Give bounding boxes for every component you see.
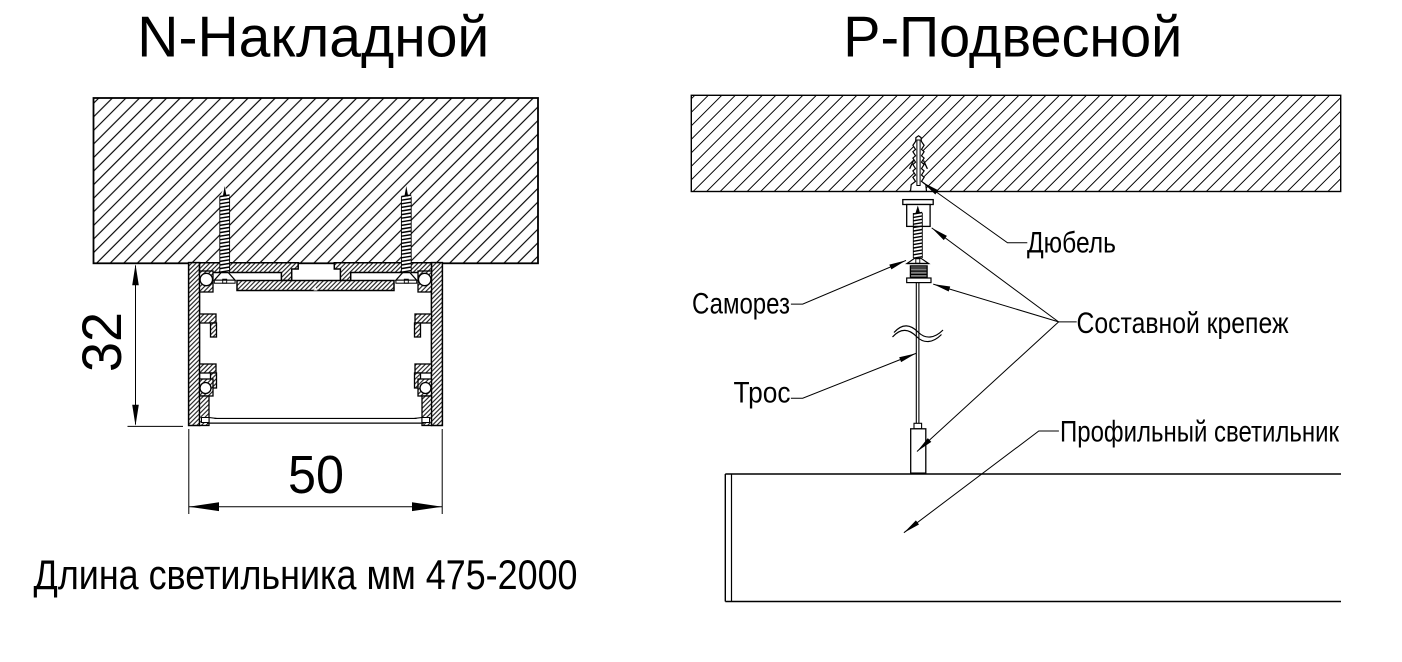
svg-text:Профильный светильник: Профильный светильник — [1060, 416, 1340, 449]
svg-text:Трос: Трос — [734, 377, 791, 410]
svg-text:Длина светильника мм 475-2000: Длина светильника мм 475-2000 — [34, 551, 578, 598]
svg-text:N-Накладной: N-Накладной — [137, 6, 489, 70]
svg-text:Р-Подвесной: Р-Подвесной — [843, 6, 1182, 70]
svg-text:32: 32 — [71, 312, 133, 372]
svg-text:Составной крепеж: Составной крепеж — [1077, 307, 1289, 340]
svg-text:50: 50 — [288, 445, 344, 505]
svg-text:Саморез: Саморез — [692, 288, 790, 321]
svg-text:Дюбель: Дюбель — [1027, 227, 1116, 260]
